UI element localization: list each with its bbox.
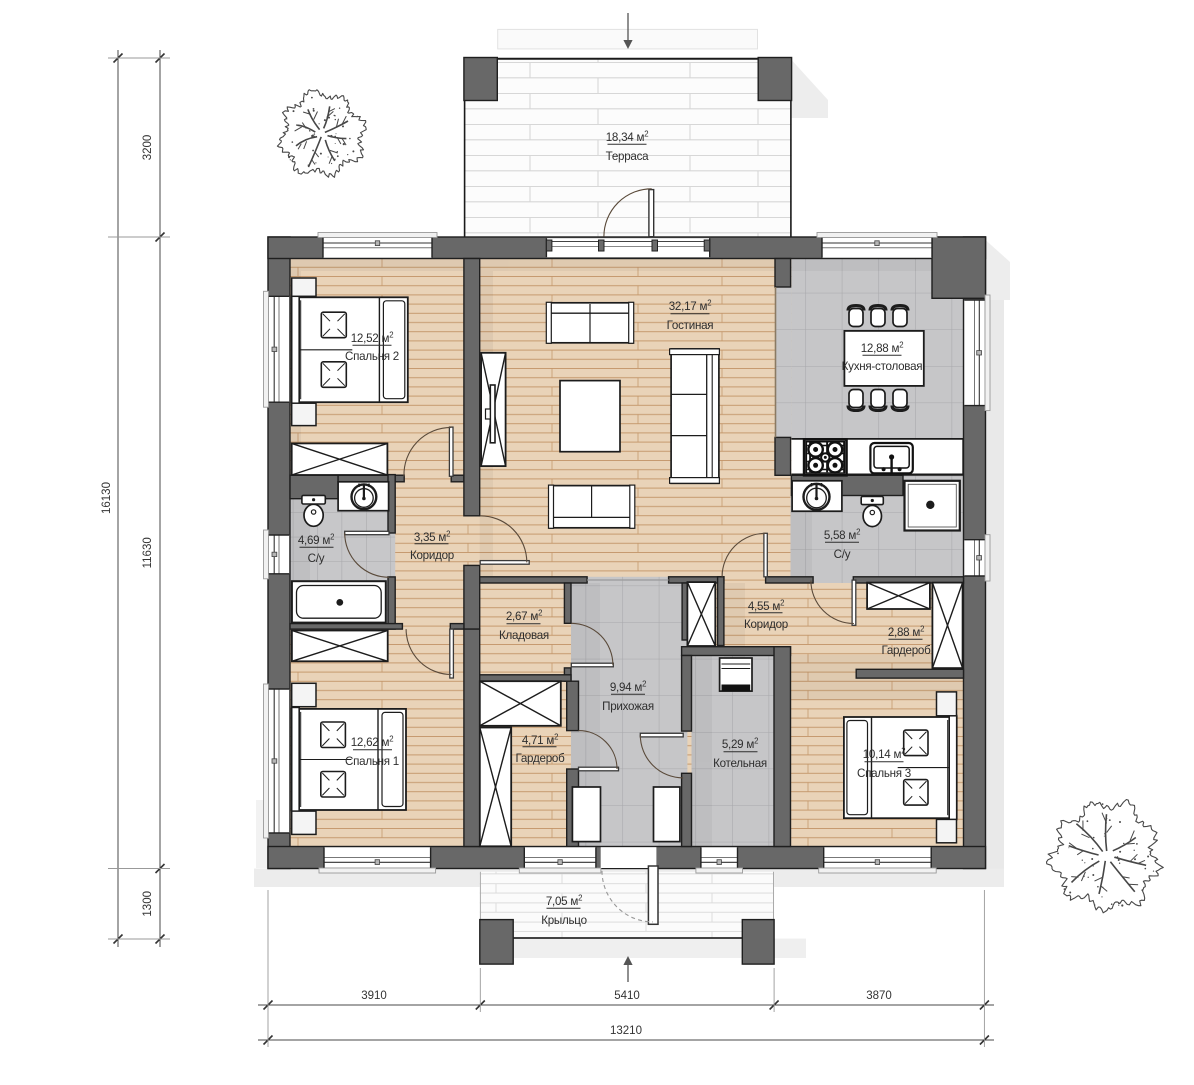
- svg-text:12,88 м2: 12,88 м2: [861, 341, 904, 356]
- svg-text:4,71 м2: 4,71 м2: [522, 733, 558, 748]
- svg-text:Гардероб: Гардероб: [515, 752, 565, 765]
- svg-text:Кладовая: Кладовая: [499, 629, 549, 642]
- svg-text:2,88 м2: 2,88 м2: [888, 625, 924, 640]
- svg-text:7,05 м2: 7,05 м2: [546, 894, 582, 909]
- svg-text:Спальня 1: Спальня 1: [345, 755, 399, 768]
- svg-text:Коридор: Коридор: [744, 618, 788, 631]
- svg-text:16130: 16130: [101, 482, 113, 514]
- svg-text:3200: 3200: [142, 135, 154, 161]
- svg-text:3910: 3910: [361, 990, 387, 1002]
- svg-text:Кухня-столовая: Кухня-столовая: [842, 360, 923, 373]
- svg-text:11630: 11630: [142, 537, 154, 568]
- svg-text:10,14 м2: 10,14 м2: [863, 747, 906, 762]
- svg-text:1300: 1300: [142, 891, 154, 917]
- svg-text:С/у: С/у: [308, 552, 325, 565]
- svg-text:Гостиная: Гостиная: [667, 319, 714, 332]
- svg-text:Терраса: Терраса: [606, 150, 650, 163]
- svg-text:С/у: С/у: [834, 548, 851, 561]
- svg-text:Гардероб: Гардероб: [881, 644, 931, 657]
- svg-text:Коридор: Коридор: [410, 549, 454, 562]
- svg-text:Крыльцо: Крыльцо: [541, 914, 587, 927]
- svg-text:Спальня 2: Спальня 2: [345, 350, 399, 363]
- svg-text:12,62 м2: 12,62 м2: [351, 735, 394, 750]
- svg-text:Прихожая: Прихожая: [602, 700, 654, 713]
- svg-text:9,94 м2: 9,94 м2: [610, 680, 646, 695]
- svg-text:5410: 5410: [614, 990, 640, 1002]
- svg-text:3870: 3870: [866, 990, 892, 1002]
- svg-text:Котельная: Котельная: [713, 757, 767, 770]
- svg-text:3,35 м2: 3,35 м2: [414, 530, 450, 545]
- svg-text:18,34 м2: 18,34 м2: [606, 130, 649, 145]
- svg-text:4,55 м2: 4,55 м2: [748, 599, 784, 614]
- svg-text:5,29 м2: 5,29 м2: [722, 737, 758, 752]
- svg-text:2,67 м2: 2,67 м2: [506, 609, 542, 624]
- svg-text:5,58 м2: 5,58 м2: [824, 528, 860, 543]
- svg-text:13210: 13210: [610, 1025, 642, 1037]
- svg-text:32,17 м2: 32,17 м2: [669, 299, 712, 314]
- svg-text:12,52 м2: 12,52 м2: [351, 331, 394, 346]
- svg-text:Спальня 3: Спальня 3: [857, 767, 911, 780]
- svg-text:4,69 м2: 4,69 м2: [298, 533, 334, 548]
